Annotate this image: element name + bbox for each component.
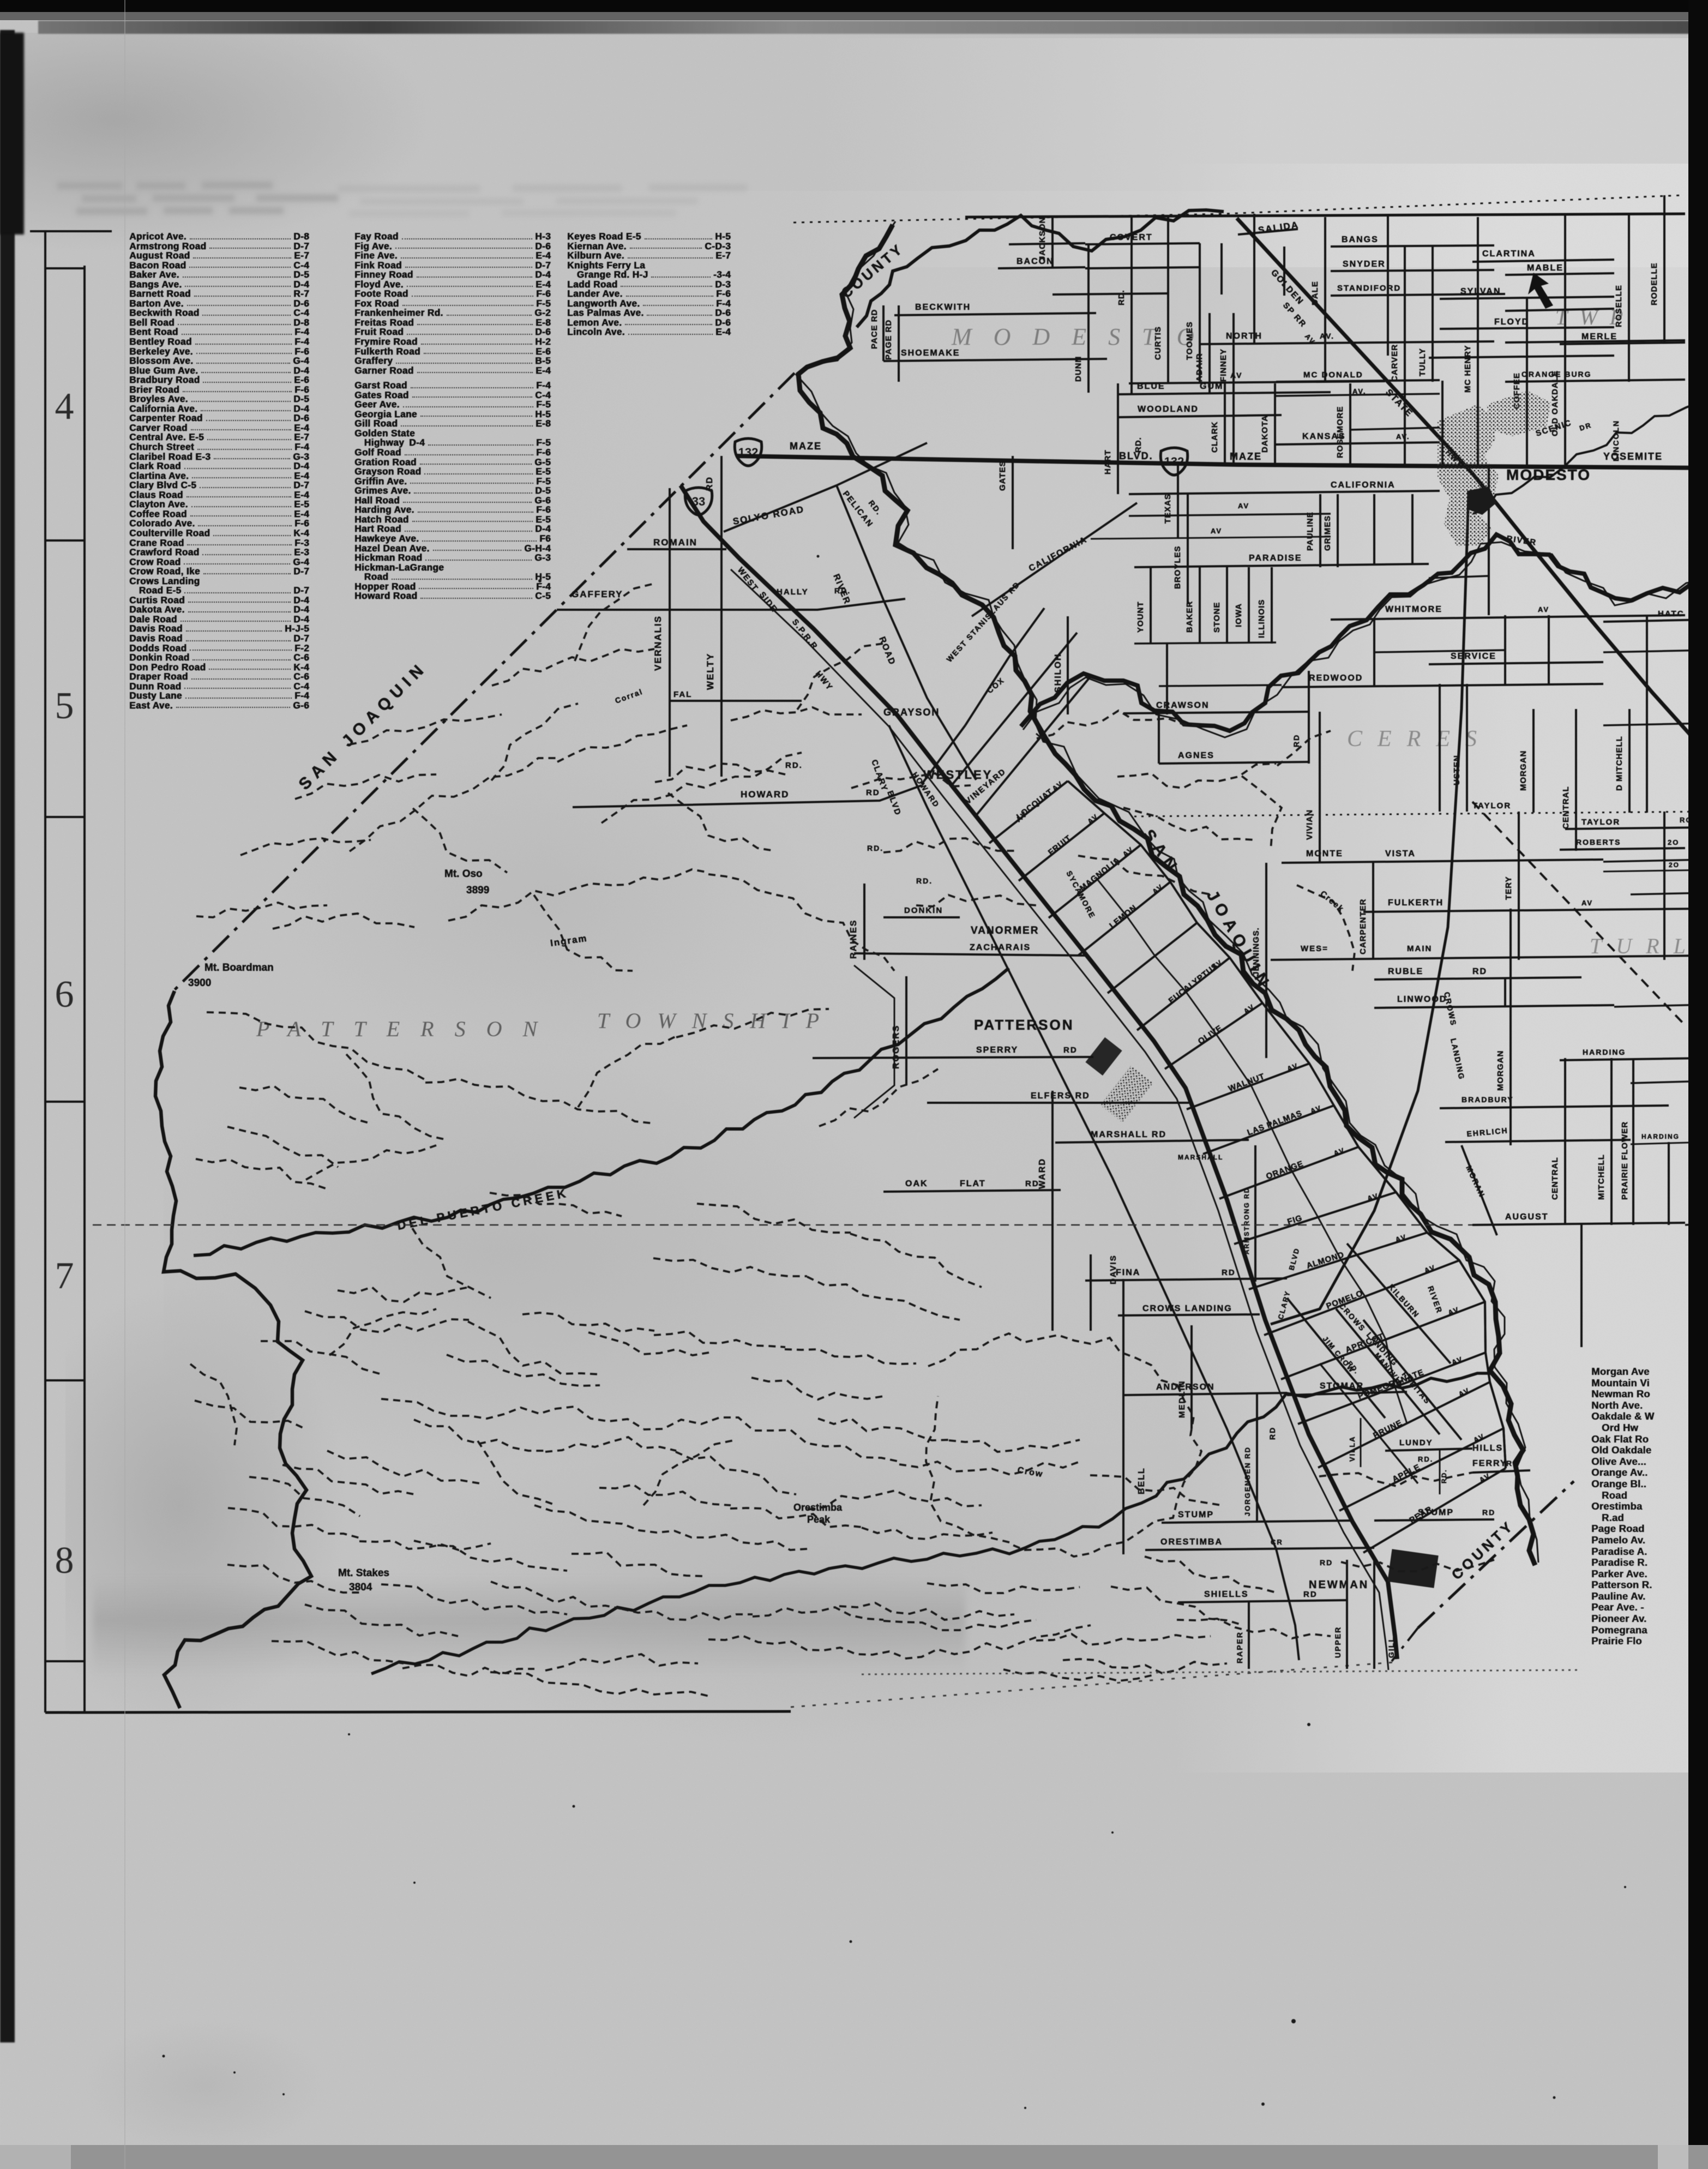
svg-text:WARD: WARD xyxy=(1038,1158,1047,1189)
svg-text:FINNEY: FINNEY xyxy=(1219,349,1228,382)
svg-text:GRAYSON: GRAYSON xyxy=(883,707,940,718)
svg-text:BROYLES: BROYLES xyxy=(1173,545,1182,589)
svg-text:CALIFORNIA: CALIFORNIA xyxy=(1331,480,1396,490)
svg-text:ADAIR: ADAIR xyxy=(1195,353,1204,382)
svg-text:CERES: CERES xyxy=(1347,726,1492,752)
svg-text:ZACHARAIS: ZACHARAIS xyxy=(970,943,1031,952)
svg-text:CARPENTER: CARPENTER xyxy=(1358,899,1368,954)
svg-text:FLOYD: FLOYD xyxy=(1494,317,1529,327)
svg-text:LUNDY: LUNDY xyxy=(1399,1438,1433,1447)
svg-text:5: 5 xyxy=(55,685,74,727)
svg-text:RD.: RD. xyxy=(916,876,933,885)
svg-text:SNYDER: SNYDER xyxy=(1343,260,1386,269)
svg-text:AGNES: AGNES xyxy=(1178,751,1214,760)
svg-text:MAIN: MAIN xyxy=(1407,944,1432,953)
svg-text:HATC: HATC xyxy=(1658,609,1685,618)
svg-text:GATES: GATES xyxy=(998,460,1007,491)
svg-text:Mt. Stakes: Mt. Stakes xyxy=(338,1567,389,1579)
svg-text:PACE RD: PACE RD xyxy=(870,309,879,349)
svg-text:RD: RD xyxy=(1506,1459,1519,1468)
svg-text:CENTRAL: CENTRAL xyxy=(1550,1157,1560,1200)
svg-text:JORGENSEN RD: JORGENSEN RD xyxy=(1243,1446,1252,1516)
svg-text:FAL: FAL xyxy=(673,690,692,699)
svg-text:WES=: WES= xyxy=(1301,944,1328,953)
svg-text:RODELLE: RODELLE xyxy=(1650,262,1659,305)
svg-text:Mt. Boardman: Mt. Boardman xyxy=(205,962,274,974)
svg-text:BECKWITH: BECKWITH xyxy=(915,303,971,312)
svg-text:PAULINE: PAULINE xyxy=(1306,512,1315,551)
svg-text:CLARTINA: CLARTINA xyxy=(1482,249,1536,259)
svg-text:RD.: RD. xyxy=(785,761,803,770)
svg-text:TURL: TURL xyxy=(1590,934,1700,958)
svg-text:CR: CR xyxy=(1271,1538,1283,1546)
svg-text:3900: 3900 xyxy=(188,977,211,989)
svg-text:RD.: RD. xyxy=(834,586,851,595)
svg-text:DAKOTA: DAKOTA xyxy=(1260,415,1270,453)
svg-text:FULKERTH: FULKERTH xyxy=(1388,898,1444,908)
svg-text:PARADISE: PARADISE xyxy=(1249,554,1302,563)
svg-text:Peak: Peak xyxy=(807,1514,831,1525)
svg-text:AV: AV xyxy=(1538,605,1549,614)
svg-text:MARSHALL RD: MARSHALL RD xyxy=(1091,1130,1166,1139)
svg-text:DUNN: DUNN xyxy=(1074,356,1083,382)
svg-text:8: 8 xyxy=(55,1540,74,1582)
svg-text:ANDERSON: ANDERSON xyxy=(1156,1383,1215,1392)
svg-text:RAINES: RAINES xyxy=(849,920,858,959)
svg-text:RD: RD xyxy=(1472,967,1487,976)
svg-text:MABLE: MABLE xyxy=(1527,263,1563,273)
svg-text:HALLY: HALLY xyxy=(777,587,809,597)
svg-text:RD.: RD. xyxy=(867,844,883,852)
svg-text:WOODLAND: WOODLAND xyxy=(1138,405,1199,414)
svg-text:HARDING: HARDING xyxy=(1583,1048,1626,1056)
svg-text:CROWS LANDING: CROWS LANDING xyxy=(1142,1304,1232,1313)
svg-text:4: 4 xyxy=(55,386,74,428)
svg-text:STANDIFORD: STANDIFORD xyxy=(1337,284,1401,293)
svg-text:WHITMORE: WHITMORE xyxy=(1385,605,1442,614)
svg-text:RO: RO xyxy=(1680,816,1693,824)
svg-text:MC DONALD: MC DONALD xyxy=(1303,370,1363,380)
svg-text:ROSELLE: ROSELLE xyxy=(1614,285,1623,327)
svg-text:TOWNSHIP: TOWNSHIP xyxy=(597,1008,835,1033)
svg-text:RD: RD xyxy=(1303,1590,1318,1599)
svg-text:ROSEMORE: ROSEMORE xyxy=(1336,406,1345,458)
svg-text:RD: RD xyxy=(1268,1427,1277,1440)
svg-text:BAKER: BAKER xyxy=(1185,601,1194,633)
svg-text:BANGS: BANGS xyxy=(1342,235,1379,244)
svg-text:TAYLOR: TAYLOR xyxy=(1581,818,1620,827)
svg-text:RD.: RD. xyxy=(1134,437,1143,453)
svg-text:MODESTO: MODESTO xyxy=(951,323,1216,350)
svg-text:33: 33 xyxy=(692,495,705,508)
svg-text:HARDING: HARDING xyxy=(1641,1133,1680,1140)
svg-text:STUMP: STUMP xyxy=(1178,1510,1214,1519)
svg-text:OAK: OAK xyxy=(905,1179,928,1188)
svg-text:MERLE: MERLE xyxy=(1581,332,1617,341)
svg-text:ILLINOIS: ILLINOIS xyxy=(1257,599,1266,638)
svg-text:MARSHALL: MARSHALL xyxy=(1178,1153,1223,1161)
svg-text:FLAT: FLAT xyxy=(960,1179,986,1188)
svg-text:AUGUST: AUGUST xyxy=(1505,1212,1549,1222)
svg-text:HART: HART xyxy=(1103,449,1112,474)
svg-text:MAZE: MAZE xyxy=(790,441,822,452)
svg-text:RD.: RD. xyxy=(1440,1469,1448,1483)
svg-text:AV: AV xyxy=(1238,502,1249,510)
svg-text:TEXAS: TEXAS xyxy=(1163,494,1172,524)
svg-text:RD.: RD. xyxy=(1418,1455,1433,1463)
svg-text:MORGAN: MORGAN xyxy=(1519,750,1528,791)
svg-text:CURTIS: CURTIS xyxy=(1153,326,1163,360)
svg-text:RD: RD xyxy=(1482,1508,1495,1517)
svg-text:MONTE: MONTE xyxy=(1306,849,1343,858)
svg-text:PATTERSON: PATTERSON xyxy=(974,1017,1074,1033)
svg-text:2O: 2O xyxy=(1669,861,1680,869)
svg-text:SPERRY: SPERRY xyxy=(976,1046,1018,1055)
svg-text:PRAIRIE FLOWER: PRAIRIE FLOWER xyxy=(1620,1121,1629,1200)
svg-text:CRAWSON: CRAWSON xyxy=(1156,701,1210,710)
svg-text:ROMAIN: ROMAIN xyxy=(653,537,697,548)
svg-text:ROGERS: ROGERS xyxy=(892,1025,901,1069)
svg-text:JENNINGS.: JENNINGS. xyxy=(1252,927,1261,976)
svg-text:3899: 3899 xyxy=(466,885,489,896)
svg-text:ROBERTS: ROBERTS xyxy=(1576,838,1621,846)
svg-text:VISTA: VISTA xyxy=(1385,849,1416,858)
svg-text:AV.: AV. xyxy=(1396,432,1410,441)
svg-text:Orestimba: Orestimba xyxy=(793,1502,843,1513)
svg-text:VANORMER: VANORMER xyxy=(971,925,1039,936)
svg-text:SERVICE: SERVICE xyxy=(1451,652,1496,661)
svg-text:6: 6 xyxy=(55,974,74,1016)
svg-text:GUM: GUM xyxy=(1200,382,1223,391)
svg-text:RD: RD xyxy=(866,788,880,797)
svg-text:TULLY: TULLY xyxy=(1418,348,1427,376)
svg-text:STUMP: STUMP xyxy=(1418,1508,1454,1517)
svg-text:DONKIN: DONKIN xyxy=(904,906,943,915)
svg-text:VERNALIS: VERNALIS xyxy=(653,615,663,671)
svg-text:LINWOOD: LINWOOD xyxy=(1397,995,1447,1004)
svg-text:BLUE: BLUE xyxy=(1137,382,1165,391)
svg-text:BACON: BACON xyxy=(1017,257,1054,266)
svg-text:ELFERS RD: ELFERS RD xyxy=(1031,1091,1090,1101)
svg-text:RD: RD xyxy=(1320,1558,1333,1567)
svg-text:BRADBURY: BRADBURY xyxy=(1462,1095,1514,1104)
svg-text:RD: RD xyxy=(1063,1046,1078,1055)
svg-text:7: 7 xyxy=(55,1255,74,1297)
svg-text:STONE: STONE xyxy=(1212,602,1222,633)
svg-text:AV: AV xyxy=(1230,371,1242,380)
svg-text:MORGAN: MORGAN xyxy=(1496,1050,1505,1091)
svg-text:LINCOLN: LINCOLN xyxy=(1611,420,1620,461)
svg-text:AV: AV xyxy=(1211,527,1222,535)
svg-text:CENTRAL: CENTRAL xyxy=(1561,786,1571,829)
svg-text:AV: AV xyxy=(1581,899,1593,907)
svg-text:ARMSTRONG RD: ARMSTRONG RD xyxy=(1243,1187,1250,1254)
svg-text:3804: 3804 xyxy=(349,1582,372,1593)
svg-text:FERRY: FERRY xyxy=(1472,1459,1507,1468)
svg-text:CARVER: CARVER xyxy=(1390,344,1399,382)
svg-text:D MITCHELL: D MITCHELL xyxy=(1615,736,1624,791)
svg-text:REDWOOD: REDWOOD xyxy=(1309,674,1363,683)
svg-text:SHIELLS: SHIELLS xyxy=(1204,1590,1249,1599)
svg-text:RUBLE: RUBLE xyxy=(1388,967,1423,976)
svg-text:GAFFERY: GAFFERY xyxy=(572,589,623,599)
svg-text:HILLS: HILLS xyxy=(1472,1444,1503,1453)
svg-text:NEWMAN: NEWMAN xyxy=(1309,1579,1369,1591)
svg-text:TOOMES: TOOMES xyxy=(1185,321,1194,360)
svg-text:VILLA: VILLA xyxy=(1348,1435,1356,1462)
svg-text:PATTERSON: PATTERSON xyxy=(256,1017,558,1041)
svg-text:RD: RD xyxy=(1292,734,1301,747)
svg-text:WESTLEY: WESTLEY xyxy=(923,768,993,782)
svg-text:VIVIAN: VIVIAN xyxy=(1305,809,1314,840)
svg-text:TERY: TERY xyxy=(1504,876,1513,900)
svg-text:PAGE RD: PAGE RD xyxy=(884,320,893,360)
svg-text:RAPER: RAPER xyxy=(1235,1631,1244,1663)
svg-text:MC HENRY: MC HENRY xyxy=(1463,345,1472,393)
svg-text:AV.: AV. xyxy=(1320,332,1334,340)
svg-text:GRIMES: GRIMES xyxy=(1323,515,1332,551)
svg-text:SHOEMAKE: SHOEMAKE xyxy=(901,349,960,358)
svg-text:RD: RD xyxy=(1025,1179,1039,1188)
svg-text:ORESTIMBA: ORESTIMBA xyxy=(1160,1537,1223,1547)
svg-text:RD: RD xyxy=(1222,1268,1236,1277)
svg-text:NORTH: NORTH xyxy=(1226,332,1262,341)
svg-text:RD.: RD. xyxy=(1117,290,1126,305)
svg-text:SYLVAN: SYLVAN xyxy=(1460,287,1501,296)
svg-text:GILL: GILL xyxy=(1387,1636,1396,1658)
svg-text:2O: 2O xyxy=(1668,838,1679,846)
svg-text:WELTY: WELTY xyxy=(705,653,715,690)
svg-text:HOWARD: HOWARD xyxy=(741,789,789,800)
svg-text:MODESTO: MODESTO xyxy=(1506,466,1591,483)
svg-text:YOUNT: YOUNT xyxy=(1136,602,1145,633)
svg-text:RD: RD xyxy=(705,476,714,491)
svg-text:FINA: FINA xyxy=(1116,1268,1140,1277)
svg-text:Mt. Oso: Mt. Oso xyxy=(444,868,483,880)
svg-text:JACKSON: JACKSON xyxy=(1038,217,1047,261)
svg-text:MITCHELL: MITCHELL xyxy=(1597,1154,1606,1200)
svg-text:CLARK: CLARK xyxy=(1210,422,1219,453)
svg-text:IOWA: IOWA xyxy=(1234,603,1243,627)
svg-text:UPPER: UPPER xyxy=(1333,1626,1342,1658)
